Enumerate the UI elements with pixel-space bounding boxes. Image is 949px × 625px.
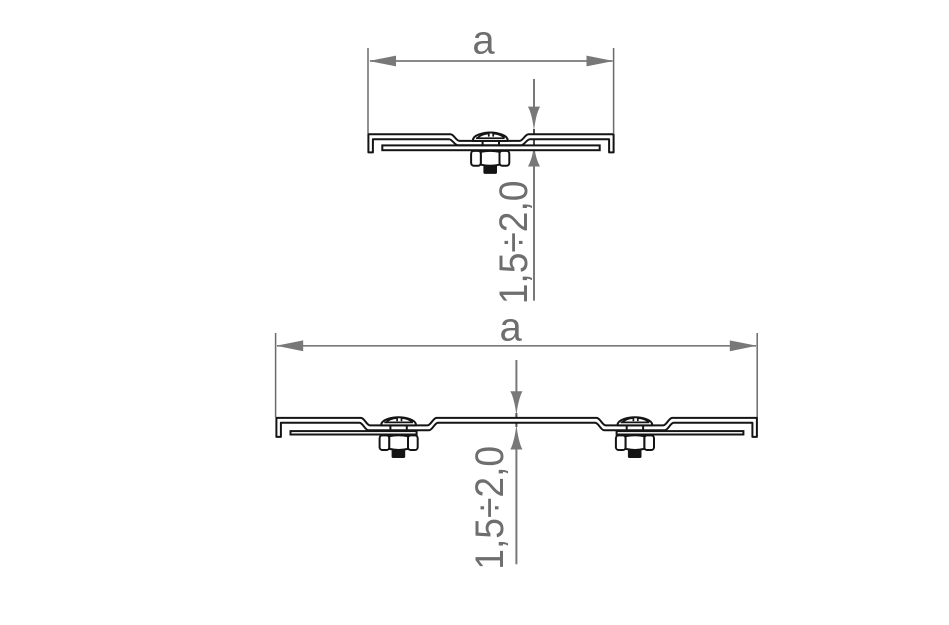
svg-text:a: a: [472, 19, 495, 63]
svg-text:a: a: [499, 306, 522, 350]
svg-text:1,5÷2,0: 1,5÷2,0: [492, 180, 537, 304]
svg-text:1,5÷2,0: 1,5÷2,0: [468, 446, 513, 570]
